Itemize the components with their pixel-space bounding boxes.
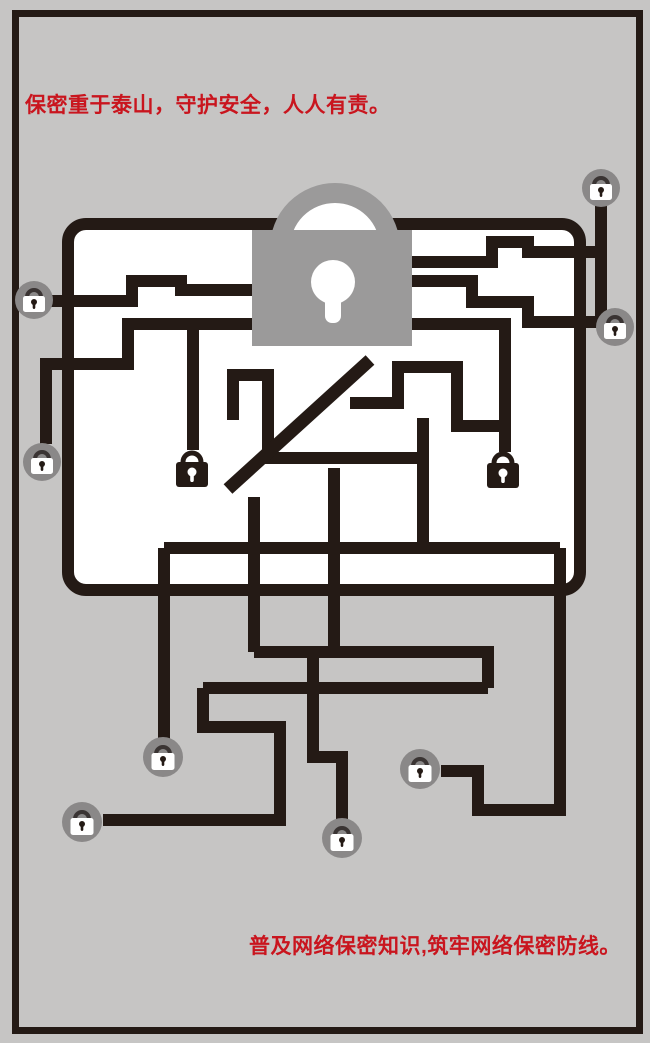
circled-padlock-icon-bottom-left — [62, 802, 102, 842]
maze-illustration — [0, 0, 650, 1043]
circled-padlock-icon-bottom-right-mid — [400, 749, 440, 789]
circled-padlock-icon-left-lower — [23, 443, 61, 481]
bottom-slogan: 普及网络保密知识,筑牢网络保密防线。 — [249, 930, 621, 960]
circled-padlock-icon-left-upper — [15, 281, 53, 319]
security-poster: { "poster": { "top_slogan": "保密重于泰山，守护安全… — [0, 0, 650, 1043]
large-padlock-icon — [252, 193, 412, 346]
circled-padlock-icon-bottom-center — [322, 818, 362, 858]
circled-padlock-icon-right — [596, 308, 634, 346]
circled-padlock-icon-bottom-left-mid — [143, 737, 183, 777]
circled-padlock-icon-top-right — [582, 169, 620, 207]
